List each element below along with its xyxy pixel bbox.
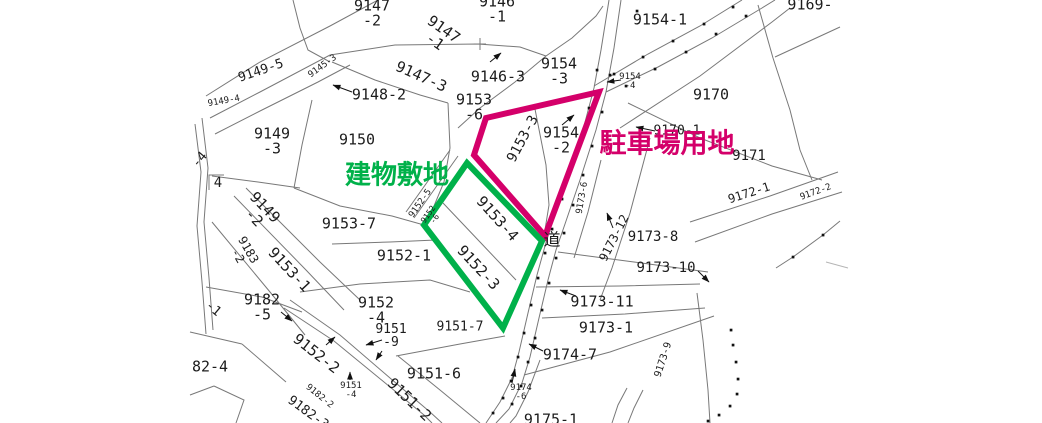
parking-lot-label: 駐車場用地 xyxy=(600,122,735,161)
parcel-boundary-lines xyxy=(190,0,848,423)
parking-lot-outline[interactable] xyxy=(474,92,599,236)
survey-point-dots xyxy=(492,6,825,423)
map-vector-layer xyxy=(0,0,1042,423)
label-leader-arrows xyxy=(281,53,709,383)
building-site-label: 建物敷地 xyxy=(345,155,449,192)
cadastral-map: 9147 -29146 -19154-19147 -19147-39146-39… xyxy=(0,0,1042,423)
